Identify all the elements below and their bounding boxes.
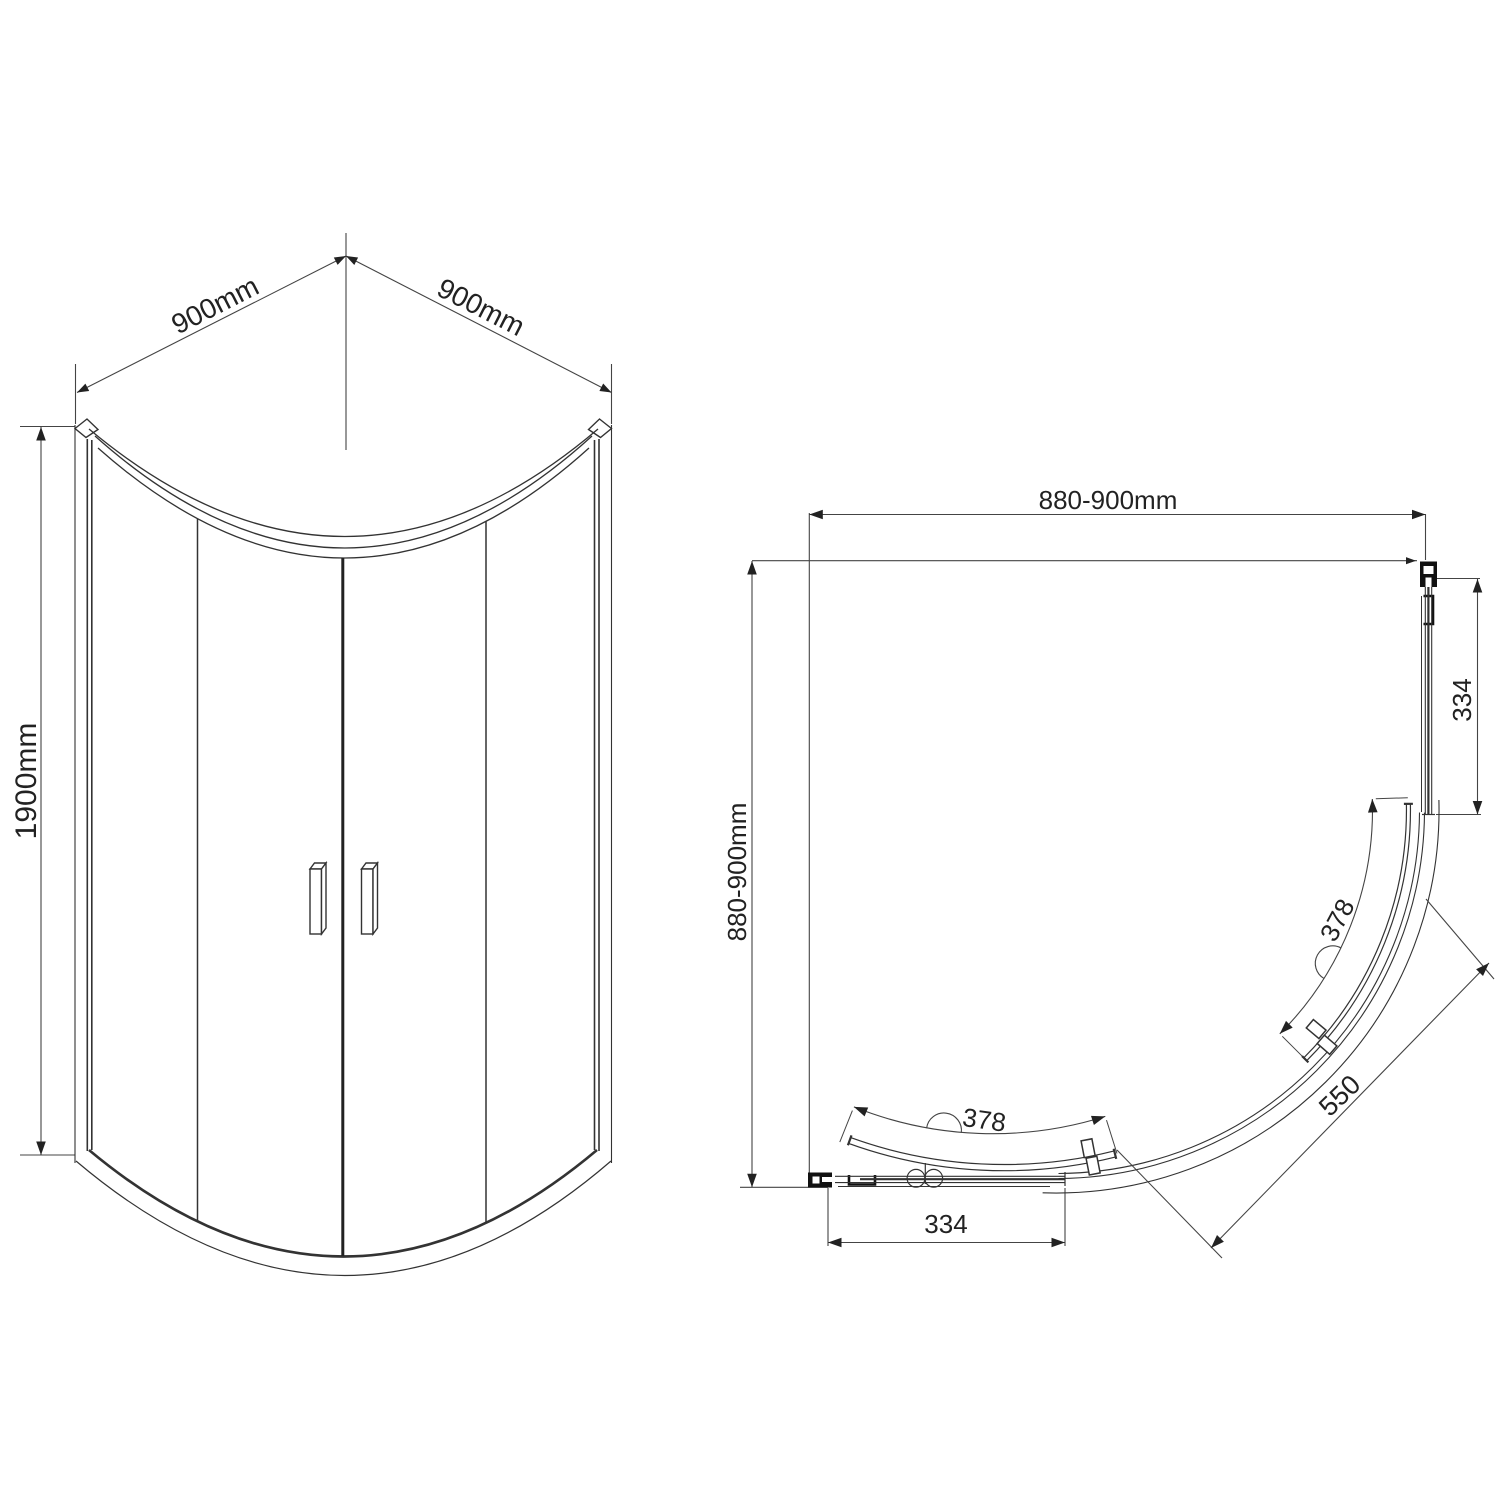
svg-text:378: 378 bbox=[1314, 894, 1361, 946]
svg-text:334: 334 bbox=[1447, 678, 1477, 721]
svg-text:550: 550 bbox=[1313, 1069, 1366, 1122]
svg-text:880-900mm: 880-900mm bbox=[722, 803, 752, 942]
svg-text:900mm: 900mm bbox=[166, 270, 263, 340]
svg-text:1900mm: 1900mm bbox=[10, 723, 43, 840]
svg-text:334: 334 bbox=[924, 1209, 967, 1239]
svg-text:900mm: 900mm bbox=[432, 272, 529, 342]
svg-text:880-900mm: 880-900mm bbox=[1039, 485, 1178, 515]
svg-text:378: 378 bbox=[961, 1102, 1008, 1138]
